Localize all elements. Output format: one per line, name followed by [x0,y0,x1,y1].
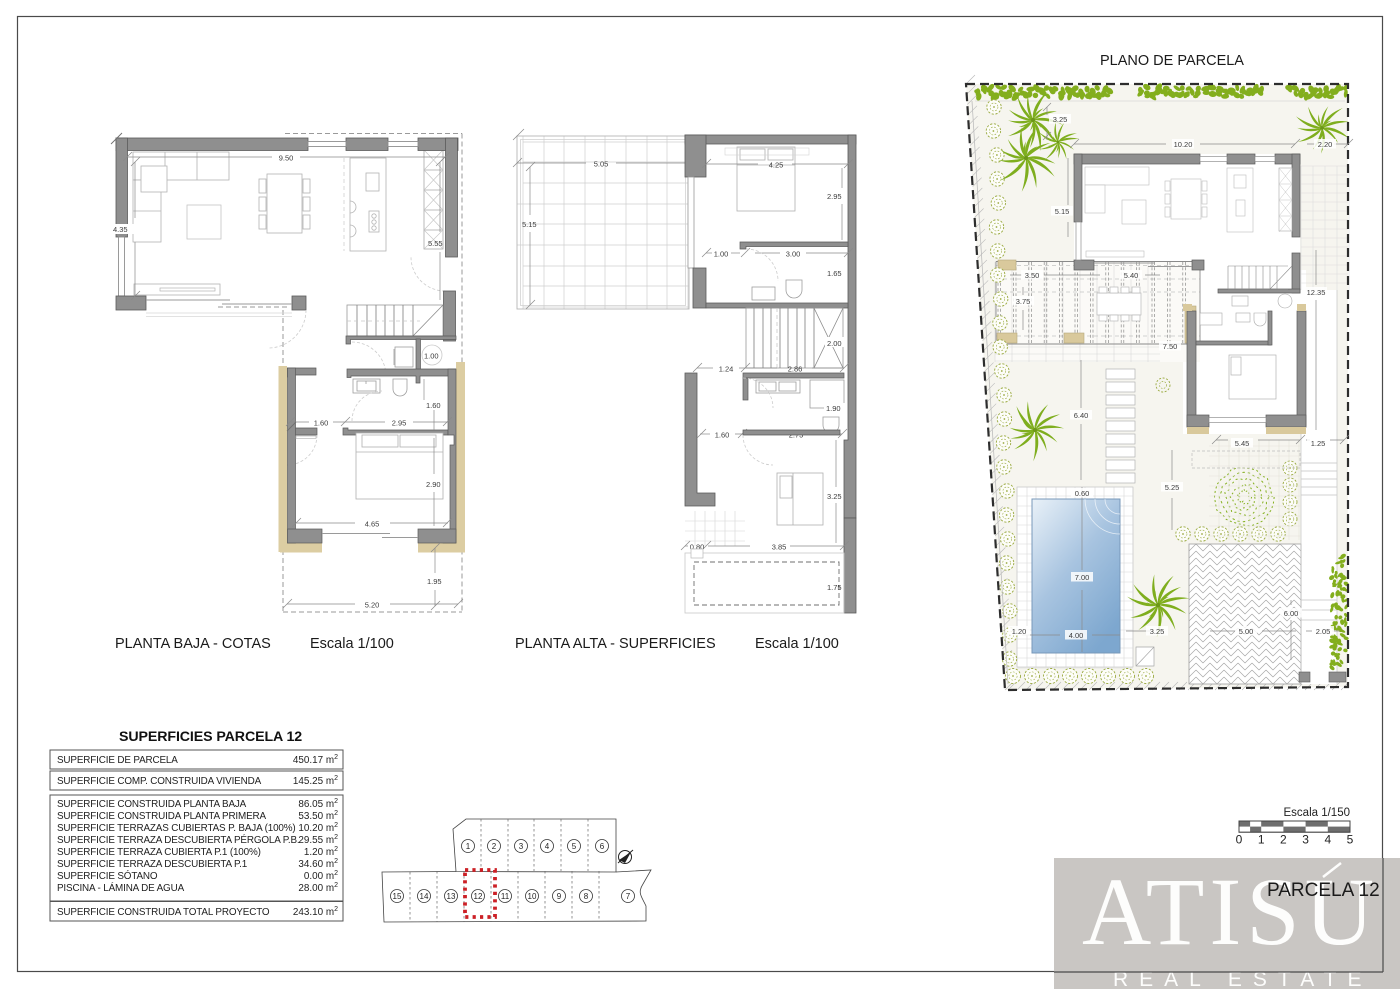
svg-text:4.65: 4.65 [365,520,380,529]
svg-text:5.20: 5.20 [365,601,380,610]
svg-text:1.20 m2: 1.20 m2 [304,846,338,858]
svg-text:3.25: 3.25 [1053,115,1068,124]
svg-text:5.40: 5.40 [1124,271,1139,280]
svg-text:SUPERFICIE CONSTRUIDA PLANTA B: SUPERFICIE CONSTRUIDA PLANTA BAJA [57,799,247,810]
svg-text:3: 3 [1302,833,1309,847]
svg-text:5.25: 5.25 [1165,483,1180,492]
svg-text:Escala 1/150: Escala 1/150 [1284,807,1351,819]
svg-text:2.00: 2.00 [827,339,842,348]
svg-text:SUPERFICIE CONSTRUIDA TOTAL PR: SUPERFICIE CONSTRUIDA TOTAL PROYECTO [57,907,270,918]
svg-text:PARCELA 12: PARCELA 12 [1267,880,1380,901]
svg-text:8: 8 [584,892,589,901]
svg-text:4.25: 4.25 [769,161,784,170]
svg-text:Escala 1/100: Escala 1/100 [310,636,394,652]
svg-text:SUPERFICIE COMP. CONSTRUIDA VI: SUPERFICIE COMP. CONSTRUIDA VIVIENDA [57,776,262,787]
svg-text:11: 11 [501,892,510,901]
svg-text:5.00: 5.00 [1239,627,1254,636]
svg-text:1.90: 1.90 [826,404,841,413]
svg-text:0.60: 0.60 [1075,489,1090,498]
svg-text:6.40: 6.40 [1074,411,1089,420]
svg-text:1.00: 1.00 [714,250,729,259]
svg-text:1.20: 1.20 [1012,627,1027,636]
svg-text:4: 4 [545,842,550,851]
svg-text:0: 0 [1236,833,1243,847]
svg-text:PLANO DE PARCELA: PLANO DE PARCELA [1100,53,1244,69]
svg-text:12: 12 [474,892,483,901]
svg-text:5: 5 [1347,833,1354,847]
svg-text:3.85: 3.85 [772,543,787,552]
svg-text:5.55: 5.55 [428,239,443,248]
svg-text:0.00 m2: 0.00 m2 [304,870,338,882]
svg-text:4.00: 4.00 [1069,631,1084,640]
svg-text:9: 9 [557,892,562,901]
svg-text:1.60: 1.60 [426,401,441,410]
svg-text:13: 13 [447,892,456,901]
svg-text:5: 5 [572,842,577,851]
svg-text:10: 10 [528,892,537,901]
svg-text:1.60: 1.60 [715,431,730,440]
svg-text:145.25 m2: 145.25 m2 [293,775,338,787]
svg-text:Escala 1/100: Escala 1/100 [755,636,839,652]
svg-text:15: 15 [393,892,402,901]
svg-text:3.75: 3.75 [1016,297,1031,306]
svg-text:14: 14 [420,892,429,901]
svg-text:PLANTA BAJA - COTAS: PLANTA BAJA - COTAS [115,636,271,652]
svg-text:3.50: 3.50 [1025,271,1040,280]
svg-text:3: 3 [519,842,524,851]
svg-text:28.00 m2: 28.00 m2 [298,882,338,894]
svg-text:29.55 m2: 29.55 m2 [298,834,338,846]
svg-text:5.05: 5.05 [594,160,609,169]
svg-text:3.25: 3.25 [827,492,842,501]
svg-text:7: 7 [626,892,631,901]
svg-text:10.20: 10.20 [1174,140,1193,149]
svg-text:PLANTA ALTA - SUPERFICIES: PLANTA ALTA - SUPERFICIES [515,636,716,652]
svg-text:243.10 m2: 243.10 m2 [293,906,338,918]
svg-text:3.00: 3.00 [786,250,801,259]
svg-text:2: 2 [492,842,497,851]
svg-text:2: 2 [1280,833,1287,847]
svg-text:SUPERFICIE TERRAZA DESCUBIERTA: SUPERFICIE TERRAZA DESCUBIERTA P.1 [57,859,248,870]
svg-text:2.95: 2.95 [827,192,842,201]
svg-text:5.15: 5.15 [522,220,537,229]
svg-text:53.50 m2: 53.50 m2 [298,810,338,822]
svg-text:1: 1 [1258,833,1265,847]
svg-text:5.45: 5.45 [1235,439,1250,448]
svg-text:SUPERFICIE SÓTANO: SUPERFICIE SÓTANO [57,871,158,882]
svg-text:1.25: 1.25 [1311,439,1326,448]
svg-text:7.50: 7.50 [1163,342,1178,351]
svg-text:6: 6 [600,842,605,851]
svg-text:2.05: 2.05 [1316,627,1331,636]
svg-text:5.15: 5.15 [1055,207,1070,216]
svg-text:450.17 m2: 450.17 m2 [293,754,338,766]
svg-text:PISCINA - LÁMINA DE AGUA: PISCINA - LÁMINA DE AGUA [57,883,185,894]
svg-text:1.65: 1.65 [827,269,842,278]
svg-text:SUPERFICIE DE PARCELA: SUPERFICIE DE PARCELA [57,755,178,766]
svg-text:4: 4 [1324,833,1331,847]
svg-text:2.95: 2.95 [392,419,407,428]
svg-text:86.05 m2: 86.05 m2 [298,798,338,810]
svg-text:1.75: 1.75 [827,583,842,592]
svg-text:REAL ESTATE: REAL ESTATE [1113,968,1372,989]
svg-text:ATISU: ATISU [1082,858,1379,965]
svg-text:SUPERFICIE CONSTRUIDA PLANTA P: SUPERFICIE CONSTRUIDA PLANTA PRIMERA [57,811,267,822]
svg-text:1.00: 1.00 [424,352,439,361]
svg-text:SUPERFICIE TERRAZA CUBIERTA P.: SUPERFICIE TERRAZA CUBIERTA P.1 (100%) [57,847,261,858]
svg-text:SUPERFICIE TERRAZAS CUBIERTAS: SUPERFICIE TERRAZAS CUBIERTAS P. BAJA (1… [57,823,296,834]
svg-text:1: 1 [466,842,471,851]
svg-text:SUPERFICIES PARCELA 12: SUPERFICIES PARCELA 12 [119,729,302,745]
svg-text:3.25: 3.25 [1150,627,1165,636]
svg-text:6.00: 6.00 [1284,609,1299,618]
svg-text:SUPERFICIE TERRAZA DESCUBIERTA: SUPERFICIE TERRAZA DESCUBIERTA PÉRGOLA P… [57,835,300,846]
svg-text:2.86: 2.86 [788,365,803,374]
svg-text:1.95: 1.95 [427,577,442,586]
svg-text:4.35: 4.35 [113,225,128,234]
svg-text:10.20 m2: 10.20 m2 [298,822,338,834]
svg-text:1.60: 1.60 [314,419,329,428]
svg-text:1.24: 1.24 [719,365,734,374]
svg-text:7.00: 7.00 [1075,573,1090,582]
svg-text:12.35: 12.35 [1307,288,1326,297]
svg-text:34.60 m2: 34.60 m2 [298,858,338,870]
svg-text:9.50: 9.50 [279,154,294,163]
svg-text:2.20: 2.20 [1318,140,1333,149]
svg-text:2.90: 2.90 [426,480,441,489]
